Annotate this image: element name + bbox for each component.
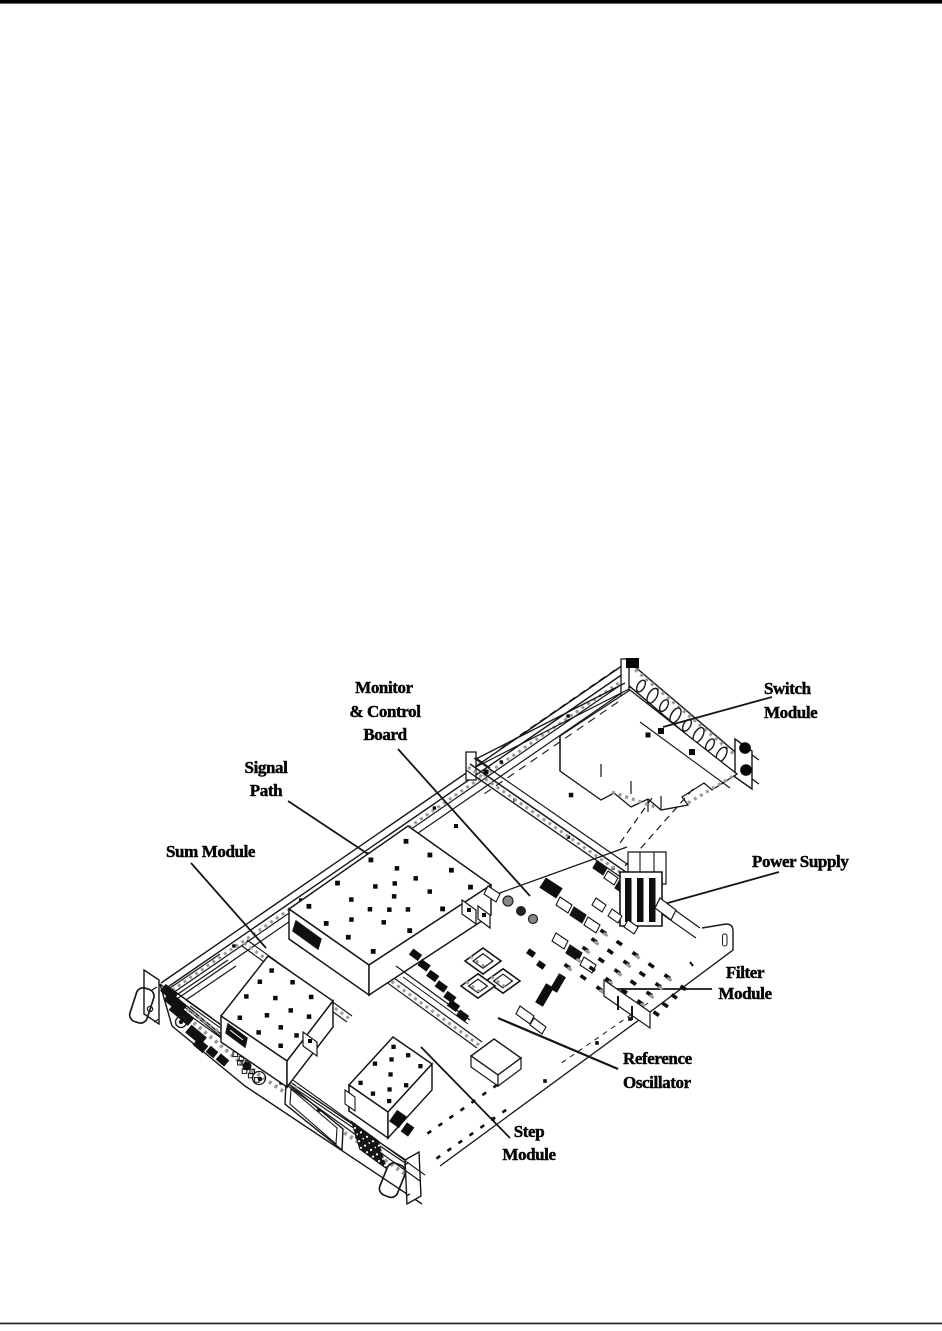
svg-text:Step: Step bbox=[514, 1122, 545, 1141]
svg-text:Path: Path bbox=[250, 781, 283, 800]
svg-text:Sum Module: Sum Module bbox=[166, 842, 256, 861]
svg-text:Module: Module bbox=[718, 984, 772, 1003]
svg-text:& Control: & Control bbox=[349, 702, 421, 721]
svg-text:Module: Module bbox=[764, 703, 818, 722]
svg-text:Power Supply: Power Supply bbox=[752, 852, 849, 871]
svg-text:Switch: Switch bbox=[764, 679, 812, 698]
svg-text:Monitor: Monitor bbox=[355, 678, 413, 697]
svg-text:Module: Module bbox=[502, 1145, 556, 1164]
svg-text:Reference: Reference bbox=[623, 1049, 693, 1068]
svg-text:Filter: Filter bbox=[726, 963, 765, 982]
svg-text:Signal: Signal bbox=[245, 758, 289, 777]
svg-text:Board: Board bbox=[363, 725, 407, 744]
svg-text:Oscillator: Oscillator bbox=[623, 1073, 692, 1092]
